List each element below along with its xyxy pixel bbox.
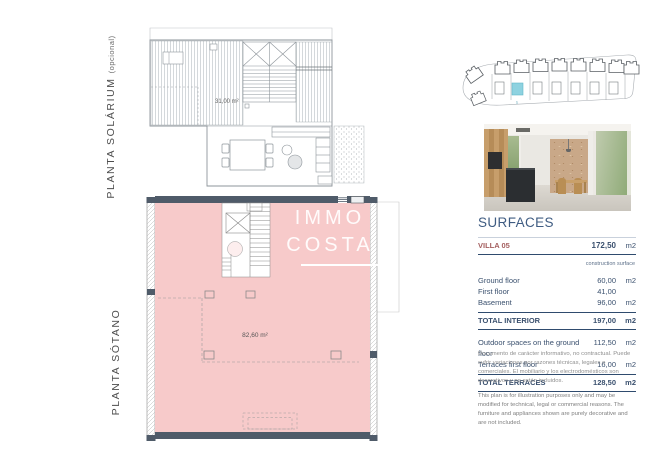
watermark-immo: IMMO xyxy=(283,205,377,232)
immocosta-watermark: IMMO COSTA xyxy=(283,205,377,259)
label-planta-sotano: PLANTA SÓTANO xyxy=(110,309,122,416)
label-planta-solarium: PLANTA SOLÁRIUM (opcional) xyxy=(105,35,117,198)
upper-floor-ghost-outline xyxy=(377,202,399,312)
basement-area-label: 82,60 m² xyxy=(242,332,268,339)
row-value: 41,00 xyxy=(580,286,616,297)
photo-chair-front xyxy=(558,178,566,194)
photo-tv xyxy=(488,152,501,169)
photo-ceiling-vent xyxy=(516,128,529,131)
solarium-staircase xyxy=(243,42,296,108)
photo-table-leg2 xyxy=(584,182,586,192)
surface-row-basement: Basement 96,00 m2 xyxy=(478,297,636,308)
villa-total-unit: m2 xyxy=(616,240,636,251)
row-value: 96,00 xyxy=(580,297,616,308)
page-root: PLANTA SOLÁRIUM (opcional) PLANTA SÓTANO xyxy=(0,0,645,451)
interior-photo xyxy=(484,124,631,211)
row-label: Ground floor xyxy=(478,275,580,286)
solarium-area-label: 31,00 m² xyxy=(215,99,239,105)
site-plan: 5 xyxy=(455,48,640,118)
disclaimer-english: This plan is for illustration purposes o… xyxy=(478,392,637,429)
villa-total-row: VILLA 05 172,50 m2 xyxy=(478,237,636,255)
site-plan-highlighted-unit xyxy=(512,83,523,95)
surfaces-title: SURFACES xyxy=(478,215,636,230)
row-value: 112,50 xyxy=(580,337,616,348)
row-value: 60,00 xyxy=(580,275,616,286)
site-boundary xyxy=(463,55,636,105)
disclaimer: Documento de carácter informativo, no co… xyxy=(478,350,637,433)
photo-kitchen-island xyxy=(506,168,535,202)
solarium-floor-plan: 31,00 m² xyxy=(148,26,368,192)
row-label: Basement xyxy=(478,297,580,308)
photo-window-frame xyxy=(593,131,597,195)
watermark-underline xyxy=(301,264,398,266)
total-interior-unit: m2 xyxy=(616,315,636,326)
photo-right-window xyxy=(593,131,631,195)
row-unit: m2 xyxy=(616,337,636,348)
row-label: First floor xyxy=(478,286,580,297)
parapet-line xyxy=(150,28,332,40)
vent-box xyxy=(210,44,217,50)
photo-window-frame-right xyxy=(627,131,631,195)
basement-staircase xyxy=(222,203,270,277)
watermark-costa: COSTA xyxy=(283,232,377,259)
top-wall xyxy=(155,196,370,203)
surface-row-ground-floor: Ground floor 60,00 m2 xyxy=(478,275,636,286)
disclaimer-spanish: Documento de carácter informativo, no co… xyxy=(478,350,637,387)
planta-solarium-text: PLANTA SOLÁRIUM xyxy=(105,77,117,198)
planta-sotano-text: PLANTA SÓTANO xyxy=(110,309,122,416)
row-unit: m2 xyxy=(616,297,636,308)
surface-row-first-floor: First floor 41,00 xyxy=(478,286,636,297)
villa-total-value: 172,50 xyxy=(580,240,616,251)
total-interior-label: TOTAL INTERIOR xyxy=(478,315,580,326)
construction-surface-note: construction surface xyxy=(478,261,636,267)
wall-vents xyxy=(338,196,364,203)
planta-solarium-optional-text: (opcional) xyxy=(107,35,116,73)
bottom-wall xyxy=(155,432,370,439)
total-interior-row: TOTAL INTERIOR 197,00 m2 xyxy=(478,312,636,330)
row-unit: m2 xyxy=(616,275,636,286)
gravel-area xyxy=(334,126,364,183)
right-terrace-hatch xyxy=(296,42,332,122)
villa-label: VILLA 05 xyxy=(478,240,580,251)
sunbed xyxy=(163,52,183,64)
total-interior-value: 197,00 xyxy=(580,315,616,326)
